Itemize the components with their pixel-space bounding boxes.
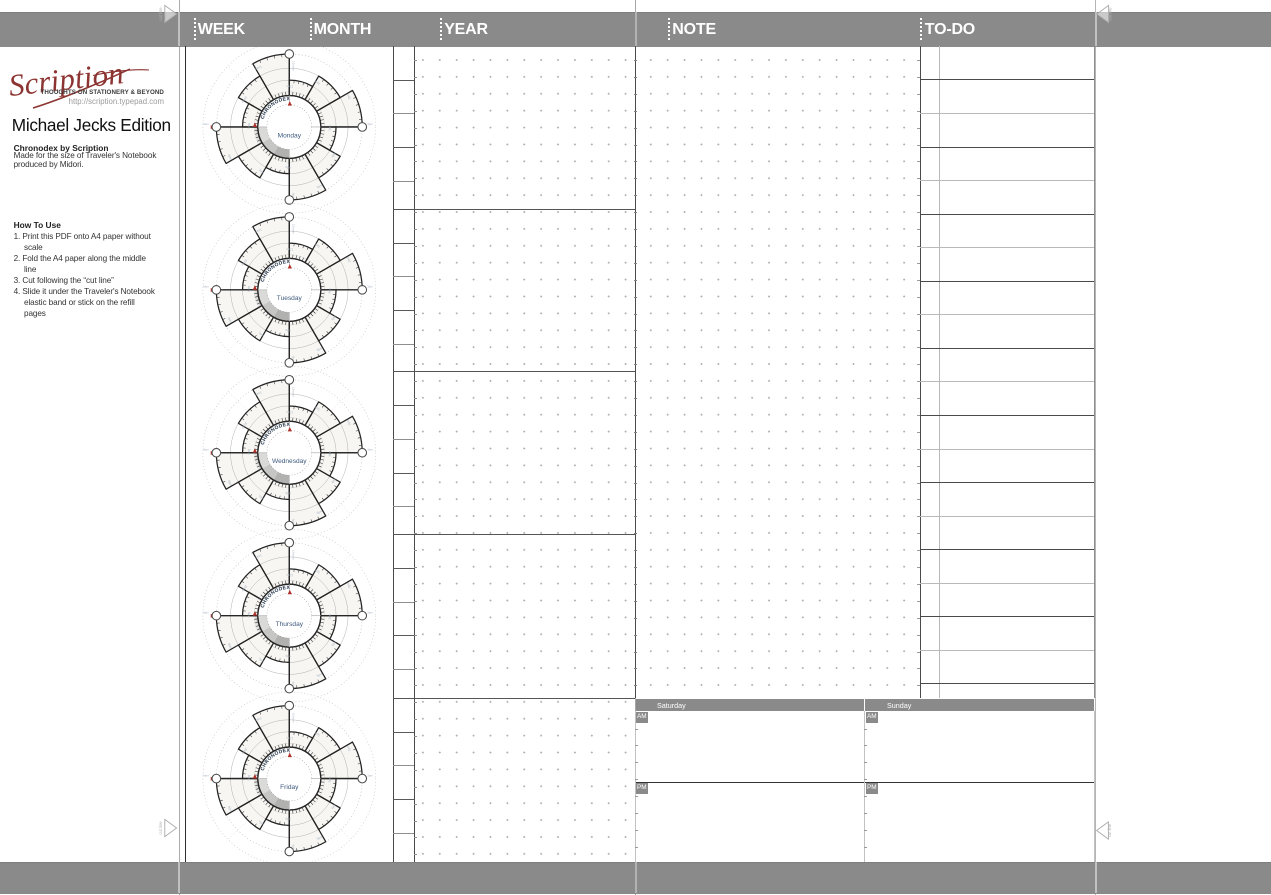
svg-text:cut line: cut line xyxy=(1107,823,1112,837)
svg-text:Tuesday: Tuesday xyxy=(277,295,303,302)
svg-text:Thursday: Thursday xyxy=(275,621,303,628)
svg-text:Friday: Friday xyxy=(280,784,299,791)
svg-text:Monday: Monday xyxy=(277,132,301,139)
svg-text:Wednesday: Wednesday xyxy=(272,458,307,465)
